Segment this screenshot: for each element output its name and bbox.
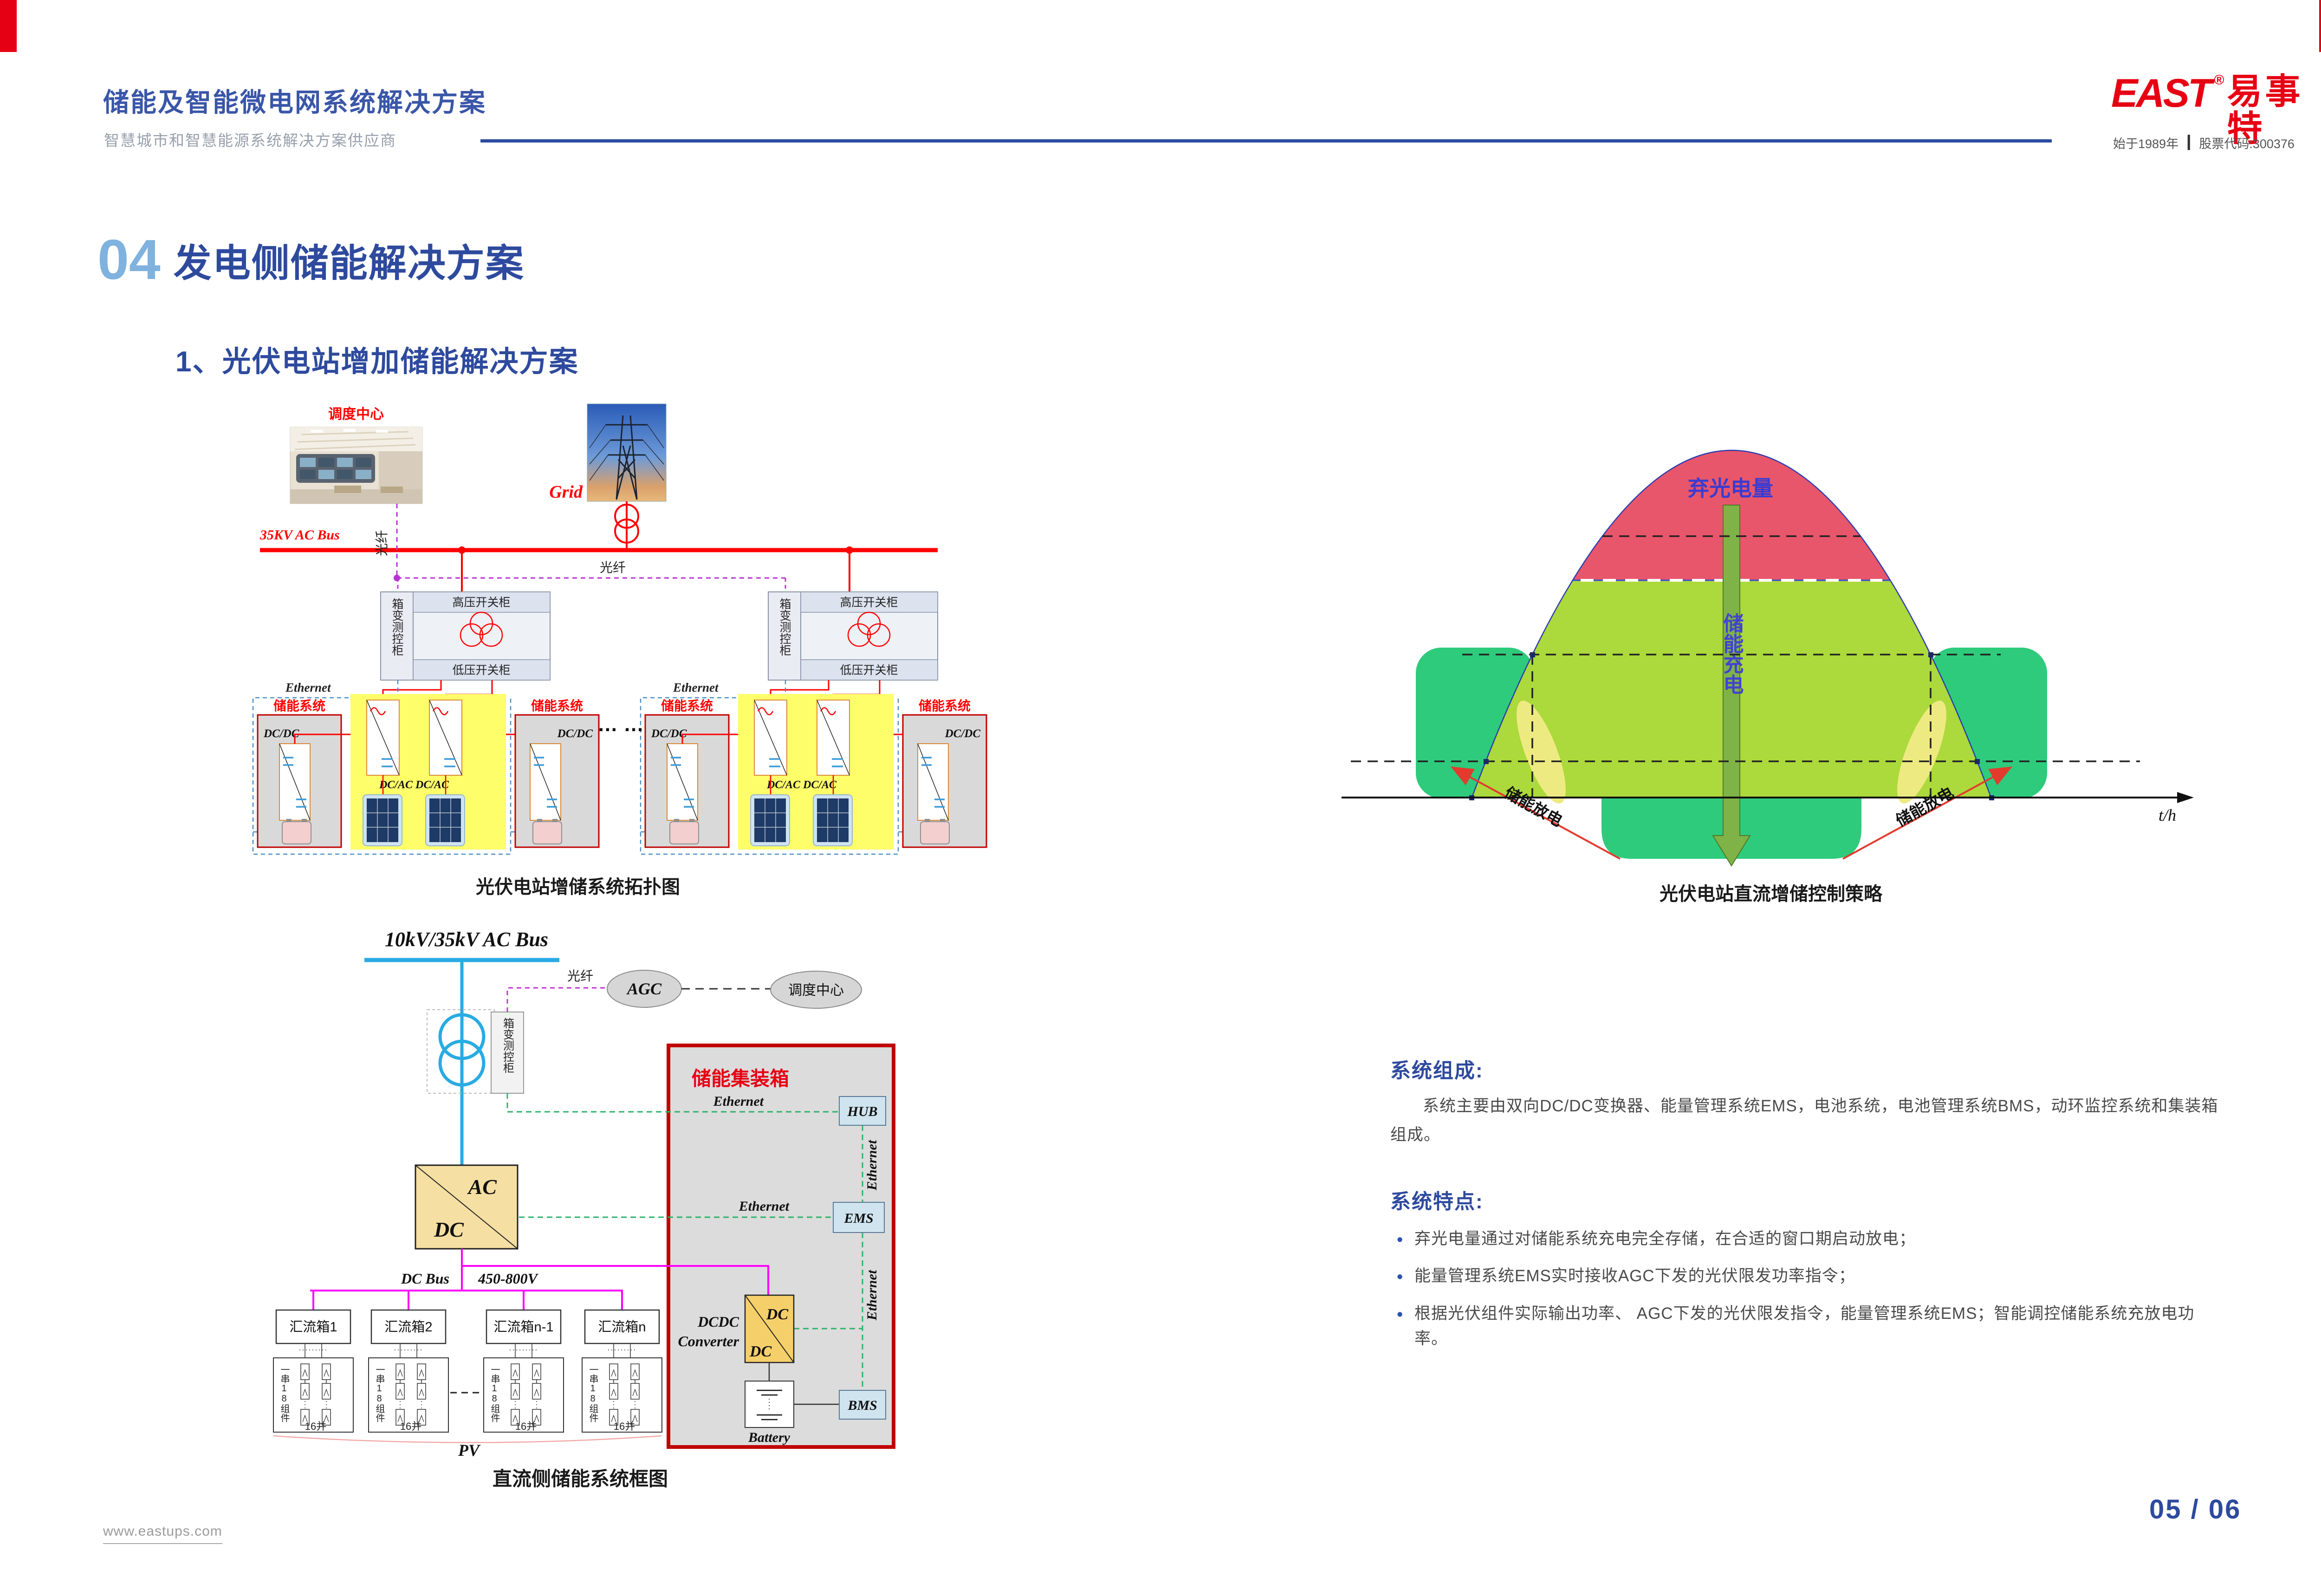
bms-node: BMS <box>839 1390 886 1419</box>
fiber-label: 光纤 <box>567 969 593 983</box>
dc-label: DC <box>434 1218 464 1241</box>
fiber-line <box>507 988 607 1012</box>
ethernet-label: Ethernet <box>285 681 331 694</box>
dcac-inverter-icon-2 <box>429 700 462 775</box>
section-number: 04 <box>97 234 161 285</box>
measure-cabinet: 箱变测控柜 <box>491 1012 524 1093</box>
control-strategy-chart: 弃光电量 储能充电 储能放电 储能放电 t/h <box>1323 395 2205 873</box>
dc-diagram-caption: 直流侧储能系统框图 <box>260 1463 901 1492</box>
dcac-label: DC/AC DC/AC <box>379 779 449 791</box>
strategy-caption: 光伏电站直流增储控制策略 <box>1323 879 2219 906</box>
pv-string-1 <box>273 1343 353 1432</box>
pv-inverter-box: DC/AC DC/AC <box>350 694 506 850</box>
hub-label: HUB <box>847 1104 877 1119</box>
ethernet-label-hub: Ethernet <box>713 1094 765 1109</box>
page-subtitle: 智慧城市和智慧能源系统解决方案供应商 <box>104 128 396 150</box>
topology-unit-2 <box>641 546 986 854</box>
feature-item: 能量管理系统EMS实时接收AGC下发的光伏限发功率指令； <box>1390 1264 2212 1289</box>
logo-tagline: 始于1989年 ┃ 股票代码:300376 <box>2113 134 2295 152</box>
composition-text: 系统主要由双向DC/DC变换器、能量管理系统EMS，电池系统，电池管理系统BMS… <box>1390 1092 2233 1150</box>
section-heading: 04 发电侧储能解决方案 <box>97 234 525 285</box>
feature-item: 根据光伏组件实际输出功率、 AGC下发的光伏限发指令，能量管理系统EMS；智能调… <box>1390 1301 2212 1352</box>
pv-string-4 <box>582 1343 662 1432</box>
dcdc-name-1: DCDC <box>697 1313 739 1330</box>
logo-since: 始于1989年 <box>2113 134 2178 152</box>
combiner-2: 汇流箱2 <box>384 1319 432 1335</box>
features-list: 弃光电量通过对储能系统充电完全存储，在合适的窗口期启动放电； 能量管理系统EMS… <box>1390 1226 2212 1363</box>
dcdc-converter-icon-right <box>530 744 561 820</box>
pv-string-3 <box>484 1343 564 1432</box>
agc-label: AGC <box>626 980 662 998</box>
dcdc-converter-icon <box>279 744 310 820</box>
dispatch-node: 调度中心 <box>771 971 862 1008</box>
x-axis-label: t/h <box>2159 806 2176 824</box>
ess-box-right: DC/DC <box>515 715 599 847</box>
storage-container-title: 储能集装箱 <box>692 1068 789 1090</box>
section-title: 发电侧储能解决方案 <box>174 245 525 285</box>
acdc-converter: AC DC <box>415 1165 518 1249</box>
dcdc-label-right: DC/DC <box>557 727 593 740</box>
logo-east-text: EAST <box>2111 73 2210 113</box>
battery-block: Battery <box>745 1381 794 1445</box>
website-link[interactable]: www.eastups.com <box>103 1524 222 1544</box>
corner-bar-right <box>2319 0 2321 52</box>
page-title: 储能及智能微电网系统解决方案 <box>103 82 486 119</box>
hv-cabinet-label: 高压开关柜 <box>452 596 510 609</box>
fiber-junction-dot <box>394 575 400 581</box>
dispatch-center-label: 调度中心 <box>328 407 384 422</box>
page-number: 05 / 06 <box>2149 1494 2241 1525</box>
grid-label: Grid <box>549 482 583 502</box>
fiber-vertical-label: 光纤 <box>375 530 389 556</box>
corner-bar-left <box>0 0 17 52</box>
registered-mark-icon: ® <box>2214 73 2224 87</box>
ac-label: AC <box>467 1175 498 1199</box>
ess-label-right: 储能系统 <box>531 698 583 713</box>
control-room-photo <box>290 427 422 504</box>
charge-label: 储能充电 <box>1720 613 1744 694</box>
combiner-4: 汇流箱n <box>598 1319 646 1335</box>
x-axis-arrow <box>2177 792 2194 803</box>
topology-unit-1: 箱变测控柜 高压开关柜 低压开关柜 Ethernet 储能系统 储能系统 DC/… <box>253 546 599 854</box>
fiber-lines <box>397 504 785 578</box>
pv-topology-diagram: 调度中心 Grid <box>241 390 1031 859</box>
transformer-cabinet: 箱变测控柜 高压开关柜 低压开关柜 <box>381 592 550 680</box>
measure-cabinet-label: 箱变测控柜 <box>501 1018 514 1073</box>
agc-node: AGC <box>607 970 681 1007</box>
dcdc-dc-bottom: DC <box>749 1343 772 1360</box>
pv-string-2 <box>369 1343 448 1432</box>
pv-panel-icon-2 <box>426 795 465 846</box>
combiner-3: 汇流箱n-1 <box>494 1319 554 1335</box>
battery-icon <box>282 819 311 844</box>
ems-node: EMS <box>833 1202 884 1233</box>
subsection-title: 1、光伏电站增加储能解决方案 <box>175 338 578 380</box>
units-ellipsis: … … <box>597 713 644 736</box>
curtailed-label: 弃光电量 <box>1688 476 1773 500</box>
dc-side-storage-diagram: 一串18组件 16并 10kV/35kV AC Bus 箱变测控柜 光纤 <box>260 924 956 1458</box>
combiner-boxes: 汇流箱1 汇流箱2 汇流箱n-1 汇流箱n <box>276 1310 659 1343</box>
dcdc-label: DC/DC <box>263 727 299 740</box>
ethernet-label-v1: Ethernet <box>864 1139 880 1191</box>
pv-panel-icon-1 <box>363 795 402 846</box>
ethernet-label-ems: Ethernet <box>739 1199 790 1214</box>
ac-bus-label: 35KV AC Bus <box>259 527 340 543</box>
dc-bus-label: DC Bus <box>401 1270 449 1287</box>
hub-node: HUB <box>839 1096 886 1125</box>
lv-cabinet-label: 低压开关柜 <box>452 664 510 677</box>
tagline-divider: ┃ <box>2185 136 2192 150</box>
ethernet-label-v2: Ethernet <box>864 1269 880 1321</box>
dcac-inverter-icon-1 <box>367 700 399 775</box>
cabinet-label: 箱变测控柜 <box>390 598 404 656</box>
ems-label: EMS <box>843 1211 873 1226</box>
composition-title: 系统组成: <box>1390 1054 1484 1083</box>
dcdc-dc-top: DC <box>766 1306 789 1323</box>
fiber-horizontal-label: 光纤 <box>600 560 626 575</box>
topology-caption: 光伏电站增储系统拓扑图 <box>241 872 914 899</box>
dcdc-name-2: Converter <box>678 1333 739 1349</box>
grid-transformer-icon <box>615 501 638 550</box>
pv-label: PV <box>458 1441 481 1458</box>
dc-ac-bus-label: 10kV/35kV AC Bus <box>385 928 548 951</box>
header-rule <box>480 139 2052 143</box>
battery-label: Battery <box>748 1430 791 1445</box>
dispatch-label: 调度中心 <box>788 983 844 998</box>
dc-bus-voltage: 450-800V <box>478 1270 539 1287</box>
battery-icon-right <box>533 819 562 844</box>
feature-item: 弃光电量通过对储能系统充电完全存储，在合适的窗口期启动放电； <box>1390 1226 2212 1252</box>
bms-label: BMS <box>847 1398 877 1413</box>
grid-tower-photo <box>587 404 666 501</box>
combiner-1: 汇流箱1 <box>289 1319 337 1335</box>
features-title: 系统特点: <box>1390 1185 1484 1214</box>
logo-stock-code: 股票代码:300376 <box>2199 134 2295 152</box>
ess-label-left: 储能系统 <box>273 698 325 713</box>
